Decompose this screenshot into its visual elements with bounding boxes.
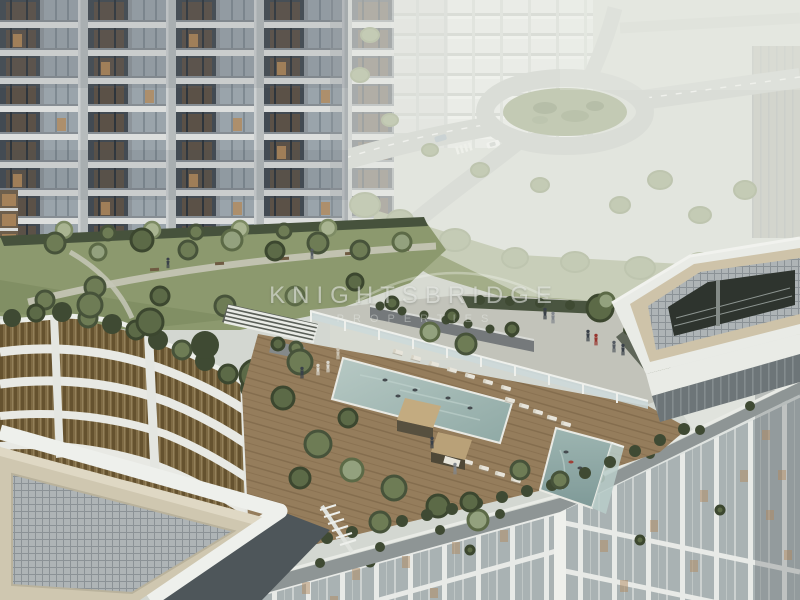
corner-column	[554, 502, 566, 600]
architectural-render: KNIGHTSBRIDGE PROPERTIES	[0, 0, 800, 600]
render-scene	[0, 0, 800, 600]
pavilion-post	[716, 280, 720, 326]
residential-tower	[0, 0, 348, 258]
